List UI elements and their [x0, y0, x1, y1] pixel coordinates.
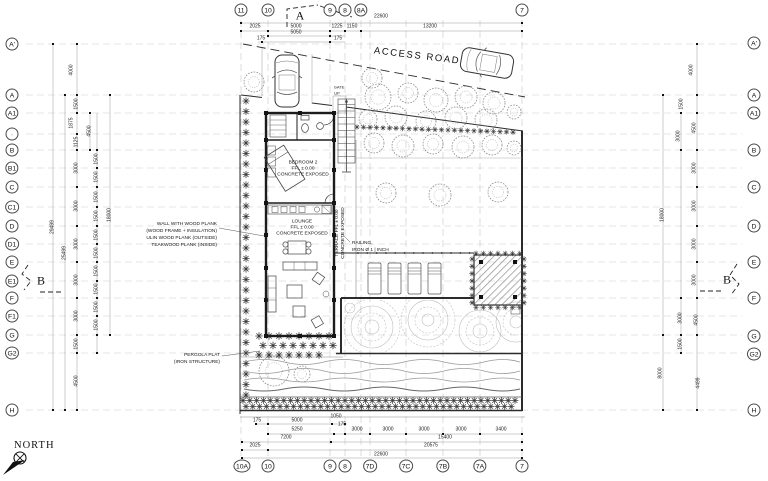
water-waves [244, 360, 520, 392]
wall-piers [264, 111, 336, 338]
site-plan-drawing [0, 0, 768, 481]
garden-trees [244, 68, 521, 386]
entry-stairs [338, 99, 355, 172]
shrub-hedges [240, 97, 527, 409]
north-arrow-icon [3, 452, 26, 475]
car-icon [459, 44, 515, 83]
dimension-chain-lines [53, 23, 697, 458]
sun-loungers [368, 263, 441, 294]
interior-furniture [264, 115, 332, 328]
car-icon [272, 55, 302, 107]
floor-plan-sheet: ACCESS ROAD BEDROOM 2 FFL ± 0.00 CONCRET… [0, 0, 768, 481]
